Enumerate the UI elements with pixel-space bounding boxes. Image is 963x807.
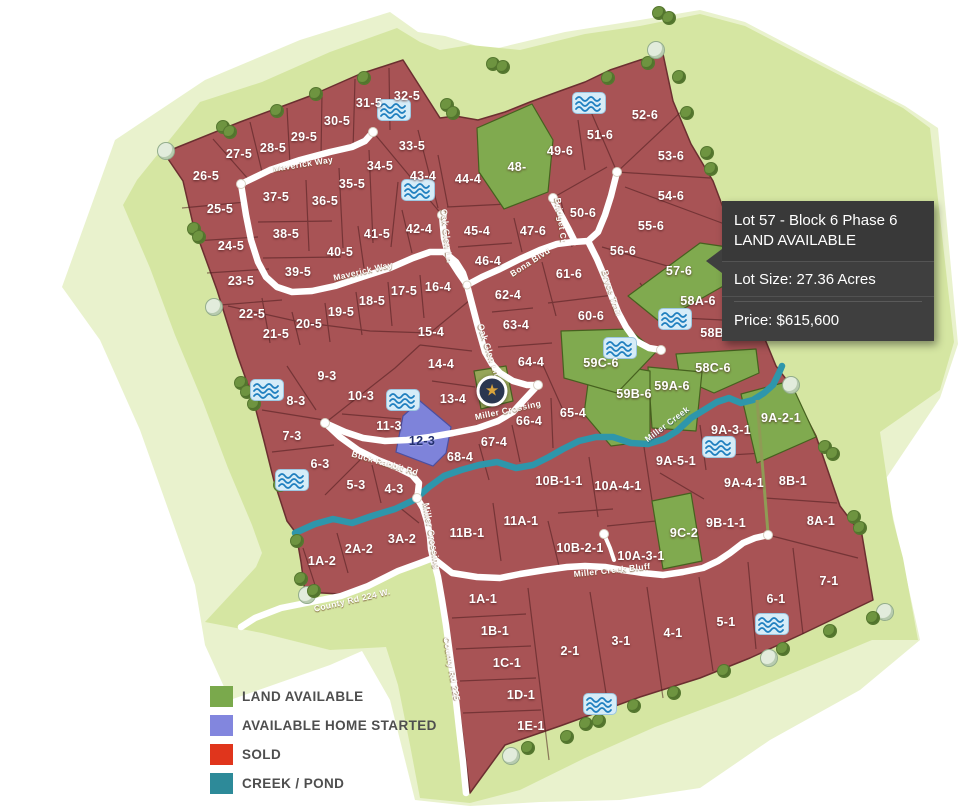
lot-info-tooltip: Lot 57 - Block 6 Phase 6 LAND AVAILABLE … <box>722 201 934 341</box>
lot-label[interactable]: 64-4 <box>518 355 544 369</box>
lot-label[interactable]: 11A-1 <box>504 514 539 528</box>
lot-label[interactable]: 15-4 <box>418 325 444 339</box>
lot-label[interactable]: 60-6 <box>578 309 604 323</box>
lot-label[interactable]: 3-1 <box>612 634 631 648</box>
lot-label[interactable]: 23-5 <box>228 274 254 288</box>
lot-label[interactable]: 1C-1 <box>493 656 521 670</box>
tree-icon <box>672 70 686 84</box>
lot-label[interactable]: 38-5 <box>273 227 299 241</box>
lot-label[interactable]: 51-6 <box>587 128 613 142</box>
lot-label[interactable]: 55-6 <box>638 219 664 233</box>
tree-icon <box>704 162 718 176</box>
lot-label[interactable]: 42-4 <box>406 222 432 236</box>
lot-label[interactable]: 2-1 <box>561 644 580 658</box>
legend-row-sold: SOLD <box>210 743 437 765</box>
lot-label[interactable]: 9A-4-1 <box>724 476 764 490</box>
lot-label[interactable]: 1E-1 <box>517 719 545 733</box>
tree-icon <box>776 642 790 656</box>
lot-label[interactable]: 5-3 <box>347 478 366 492</box>
lot-label[interactable]: 17-5 <box>391 284 417 298</box>
lot-label[interactable]: 33-5 <box>399 139 425 153</box>
plat-map-page: 26-527-528-529-530-531-532-533-534-535-5… <box>0 0 963 807</box>
lot-label[interactable]: 37-5 <box>263 190 289 204</box>
lot-label[interactable]: 57-6 <box>666 264 692 278</box>
tooltip-lot-title: Lot 57 - Block 6 Phase 6 <box>734 211 922 231</box>
lot-label[interactable]: 4-1 <box>664 626 683 640</box>
lot-label[interactable]: 34-5 <box>367 159 393 173</box>
lot-label[interactable]: 22-5 <box>239 307 265 321</box>
tree-icon <box>446 106 460 120</box>
lot-label[interactable]: 6-3 <box>311 457 330 471</box>
pond-icon <box>572 92 606 114</box>
lot-label[interactable]: 58C-6 <box>695 361 731 375</box>
tree-icon <box>502 747 520 765</box>
lot-label[interactable]: 59B-6 <box>616 387 652 401</box>
pond-icon <box>658 308 692 330</box>
tree-icon <box>223 125 237 139</box>
lot-label[interactable]: 11-3 <box>376 419 402 433</box>
legend-row-creek-pond: CREEK / POND <box>210 772 437 794</box>
lot-label[interactable]: 16-4 <box>425 280 451 294</box>
subdivision-map[interactable] <box>0 0 963 807</box>
lot-label[interactable]: 9A-2-1 <box>761 411 801 425</box>
tree-icon <box>647 41 665 59</box>
lot-label[interactable]: 53-6 <box>658 149 684 163</box>
tree-icon <box>601 71 615 85</box>
tree-icon <box>662 11 676 25</box>
lot-label[interactable]: 9C-2 <box>670 526 698 540</box>
tree-icon <box>717 664 731 678</box>
lot-label[interactable]: 35-5 <box>339 177 365 191</box>
lot-label[interactable]: 12-3 <box>409 434 435 448</box>
tree-icon <box>680 106 694 120</box>
lot-label[interactable]: 19-5 <box>328 305 354 319</box>
lot-label[interactable]: 9A-3-1 <box>711 423 751 437</box>
tree-icon <box>627 699 641 713</box>
map-legend: LAND AVAILABLE AVAILABLE HOME STARTED SO… <box>210 685 437 801</box>
lot-label[interactable]: 10A-4-1 <box>594 479 641 493</box>
lot-label[interactable]: 63-4 <box>503 318 529 332</box>
lot-label[interactable]: 58A-6 <box>680 294 716 308</box>
tooltip-lot-size: Lot Size: 27.36 Acres <box>722 262 934 297</box>
lot-label[interactable]: 29-5 <box>291 130 317 144</box>
pond-icon <box>583 693 617 715</box>
pond-icon <box>386 389 420 411</box>
tree-icon <box>496 60 510 74</box>
tooltip-lot-price: Price: $615,600 <box>722 302 934 341</box>
tree-icon <box>205 298 223 316</box>
lot-label[interactable]: 32-5 <box>394 89 420 103</box>
lot-label[interactable]: 59A-6 <box>654 379 690 393</box>
lot-label[interactable]: 4-3 <box>385 482 404 496</box>
tooltip-header: Lot 57 - Block 6 Phase 6 LAND AVAILABLE <box>722 201 934 262</box>
lot-label[interactable]: 24-5 <box>218 239 244 253</box>
lot-label[interactable]: 9-3 <box>318 369 337 383</box>
tree-icon <box>866 611 880 625</box>
lot-label[interactable]: 8A-1 <box>807 514 835 528</box>
lot-label[interactable]: 44-4 <box>455 172 481 186</box>
tooltip-lot-status: LAND AVAILABLE <box>734 231 922 251</box>
lot-label[interactable]: 65-4 <box>560 406 586 420</box>
lot-label[interactable]: 14-4 <box>428 357 454 371</box>
lot-label[interactable]: 67-4 <box>481 435 507 449</box>
tree-icon <box>560 730 574 744</box>
lot-label[interactable]: 43-4 <box>410 169 436 183</box>
pond-icon <box>275 469 309 491</box>
lot-label[interactable]: 9B-1-1 <box>706 516 746 530</box>
lot-label[interactable]: 48- <box>508 160 527 174</box>
tree-icon <box>309 87 323 101</box>
legend-label: CREEK / POND <box>242 776 344 791</box>
lot-label[interactable]: 66-4 <box>516 414 542 428</box>
lot-label[interactable]: 9A-5-1 <box>656 454 696 468</box>
sold-swatch-icon <box>210 744 233 765</box>
lot-label[interactable]: 46-4 <box>475 254 501 268</box>
lot-label[interactable]: 7-3 <box>283 429 302 443</box>
tree-icon <box>853 521 867 535</box>
land-available-swatch-icon <box>210 686 233 707</box>
lot-label[interactable]: 50-6 <box>570 206 596 220</box>
star-marker[interactable]: ★ <box>477 376 508 407</box>
lot-label[interactable]: 8-3 <box>287 394 306 408</box>
lot-label[interactable]: 26-5 <box>193 169 219 183</box>
lot-label[interactable]: 10-3 <box>348 389 374 403</box>
lot-label[interactable]: 45-4 <box>464 224 490 238</box>
lot-label[interactable]: 56-6 <box>610 244 636 258</box>
tree-icon <box>270 104 284 118</box>
lot-label[interactable]: 11B-1 <box>450 526 485 540</box>
tree-icon <box>667 686 681 700</box>
tree-icon <box>823 624 837 638</box>
lot-label[interactable]: 10B-1-1 <box>535 474 582 488</box>
lot-label[interactable]: 7-1 <box>820 574 839 588</box>
tree-icon <box>782 376 800 394</box>
lot-label[interactable]: 1A-1 <box>469 592 497 606</box>
lot-label[interactable]: 18-5 <box>359 294 385 308</box>
lot-label[interactable]: 36-5 <box>312 194 338 208</box>
lot-label[interactable]: 5-1 <box>717 615 736 629</box>
lot-label[interactable]: 68-4 <box>447 450 473 464</box>
lot-label[interactable]: 54-6 <box>658 189 684 203</box>
lot-label[interactable]: 62-4 <box>495 288 521 302</box>
lot-label[interactable]: 10B-2-1 <box>556 541 603 555</box>
lot-label[interactable]: 41-5 <box>364 227 390 241</box>
lot-label[interactable]: 61-6 <box>556 267 582 281</box>
tree-icon <box>826 447 840 461</box>
lot-label[interactable]: 39-5 <box>285 265 311 279</box>
legend-label: LAND AVAILABLE <box>242 689 364 704</box>
lot-label[interactable]: 47-6 <box>520 224 546 238</box>
tree-icon <box>579 717 593 731</box>
lot-label[interactable]: 27-5 <box>226 147 252 161</box>
lot-label[interactable]: 59C-6 <box>583 356 619 370</box>
lot-label[interactable]: 1B-1 <box>481 624 509 638</box>
creek-pond-swatch-icon <box>210 773 233 794</box>
lot-label[interactable]: 40-5 <box>327 245 353 259</box>
lot-label[interactable]: 13-4 <box>440 392 466 406</box>
tree-icon <box>290 534 304 548</box>
tree-icon <box>521 741 535 755</box>
pond-icon <box>755 613 789 635</box>
tree-icon <box>157 142 175 160</box>
lot-label[interactable]: 6-1 <box>767 592 786 606</box>
lot-label[interactable]: 49-6 <box>547 144 573 158</box>
lot-label[interactable]: 52-6 <box>632 108 658 122</box>
tree-icon <box>357 71 371 85</box>
pond-icon <box>702 436 736 458</box>
pond-icon <box>250 379 284 401</box>
lot-label[interactable]: 2A-2 <box>345 542 373 556</box>
home-started-swatch-icon <box>210 715 233 736</box>
tree-icon <box>192 230 206 244</box>
lot-label[interactable]: 3A-2 <box>388 532 416 546</box>
tree-icon <box>592 714 606 728</box>
lot-label[interactable]: 30-5 <box>324 114 350 128</box>
legend-row-home-started: AVAILABLE HOME STARTED <box>210 714 437 736</box>
legend-label: AVAILABLE HOME STARTED <box>242 718 437 733</box>
tree-icon <box>307 584 321 598</box>
tree-icon <box>700 146 714 160</box>
lot-label[interactable]: 8B-1 <box>779 474 807 488</box>
tree-icon <box>294 572 308 586</box>
lot-label[interactable]: 25-5 <box>207 202 233 216</box>
lot-label[interactable]: 28-5 <box>260 141 286 155</box>
lot-label[interactable]: 21-5 <box>263 327 289 341</box>
lot-label[interactable]: 1D-1 <box>507 688 535 702</box>
lot-label[interactable]: 20-5 <box>296 317 322 331</box>
lot-label[interactable]: 1A-2 <box>308 554 336 568</box>
lot-label[interactable]: 31-5 <box>356 96 382 110</box>
legend-label: SOLD <box>242 747 281 762</box>
tooltip-arrow <box>706 249 722 273</box>
tree-icon <box>760 649 778 667</box>
legend-row-land-available: LAND AVAILABLE <box>210 685 437 707</box>
